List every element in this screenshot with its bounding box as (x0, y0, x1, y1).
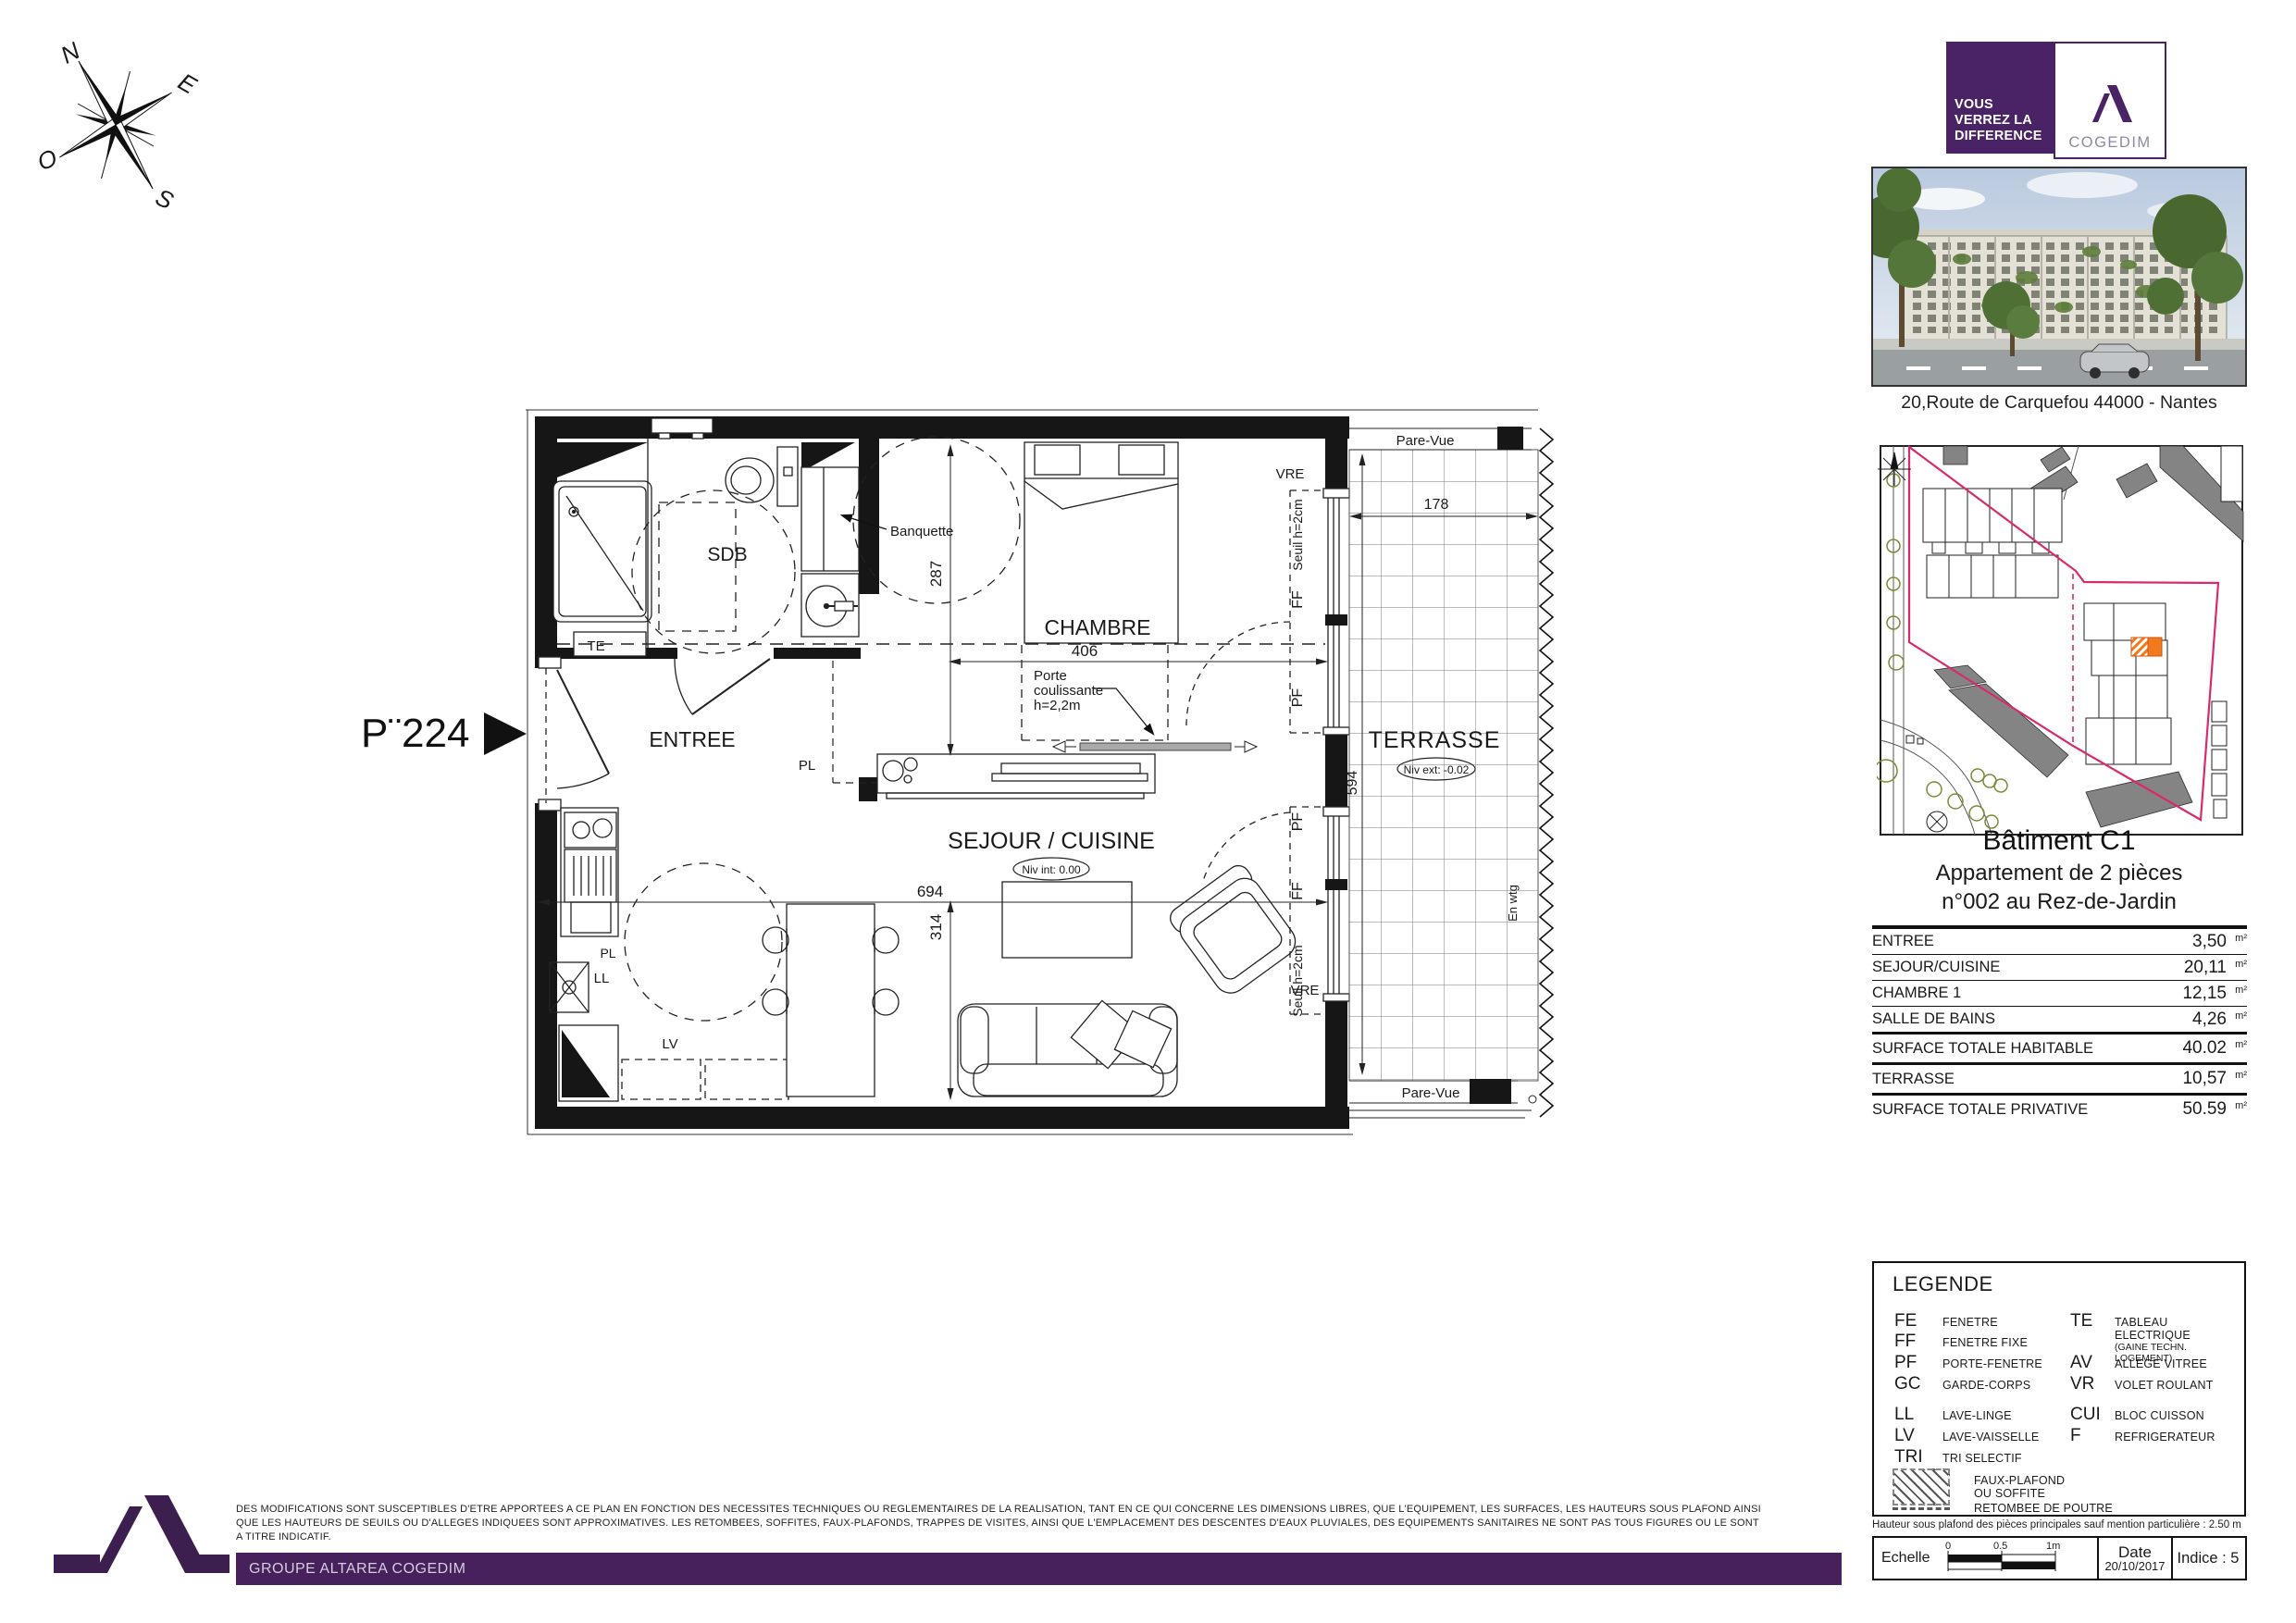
row-value: 12,15 (2182, 984, 2227, 1004)
room-label-chambre: CHAMBRE (1044, 615, 1150, 639)
legend-abbr: AV (2070, 1353, 2115, 1373)
kitchen-left (550, 808, 788, 1101)
compass-rose-icon: N E O S (28, 32, 241, 245)
sliding-door-note-1: Porte (1034, 668, 1067, 684)
wall-fill-wedge (557, 442, 648, 477)
window-chambre (1186, 489, 1349, 735)
legend-label: LAVE-LINGE (1942, 1409, 2012, 1422)
scale-bar: 0 0.5 1m (1942, 1540, 2065, 1577)
vre-top-label: VRE (1276, 466, 1305, 482)
compass-o: O (33, 143, 60, 176)
cogedim-logo: VOUS VERREZ LA DIFFERENCE COGEDIM (1946, 42, 2166, 159)
scale-tick: 1m (2046, 1541, 2060, 1552)
room-label-sejour: SEJOUR / CUISINE (948, 828, 1155, 854)
entrance-door (539, 657, 609, 811)
row-unit: m² (2227, 933, 2247, 944)
dim-chambre-height: 287 (927, 561, 945, 587)
row-unit: m² (2227, 985, 2247, 996)
chair-icon (873, 927, 899, 953)
legend: LEGENDE FEFENETRE FFFENETRE FIXE PFPORTE… (1872, 1261, 2246, 1517)
unit-titles: Bâtiment C1 Appartement de 2 pièces n°00… (1872, 825, 2246, 915)
lv-label: LV (662, 1036, 677, 1052)
legend-abbr: CUI (2070, 1405, 2115, 1425)
dishwasher-zone (622, 1059, 701, 1099)
plan-sheet: N E O S P¨224 (0, 0, 2296, 1623)
kitchen-counter (877, 754, 1155, 799)
brand-mark: COGEDIM (2054, 42, 2166, 159)
faux-plafond-swatch-icon (1893, 1468, 1950, 1505)
revision-index: Indice : 5 (2178, 1550, 2240, 1567)
legend-abbr: LL (1894, 1405, 1942, 1425)
pl-label: PL (799, 758, 815, 774)
unit-type: Appartement de 2 pièces (1872, 861, 2246, 886)
room-label-entree: ENTREE (649, 727, 735, 751)
brand-tagline: VOUS VERREZ LA DIFFERENCE (1946, 42, 2054, 154)
legend-abbr: FF (1894, 1332, 1942, 1352)
banquette-bench (801, 467, 859, 571)
level-interior: Niv int: 0.00 (1022, 863, 1081, 876)
entry-marker-label: P¨224 (361, 711, 469, 757)
chair-icon (763, 989, 788, 1015)
terrace-post (1470, 1079, 1511, 1104)
table-row: SALLE DE BAINS 4,26 m² (1872, 1007, 2247, 1035)
table-row: ENTREE 3,50 m² (1872, 929, 2247, 955)
row-label: SALLE DE BAINS (1872, 1010, 2192, 1028)
seuil-label: Seuil h=2cm (1290, 499, 1305, 570)
row-value: 50.59 (2182, 1099, 2227, 1120)
row-label: SURFACE TOTALE HABITABLE (1872, 1040, 2182, 1058)
groupe-label: GROUPE ALTAREA COGEDIM (236, 1561, 465, 1578)
table-row-total-habitable: SURFACE TOTALE HABITABLE 40.02 m² (1872, 1035, 2247, 1065)
entry-closet (833, 661, 877, 783)
terrace-edge-zigzag (1540, 428, 1553, 1117)
room-label-sdb: SDB (707, 544, 747, 565)
scale-label: Echelle (1881, 1550, 1930, 1567)
pare-vue-bottom-label: Pare-Vue (1402, 1085, 1460, 1101)
row-value: 20,11 (2184, 958, 2227, 978)
lambda-icon (2082, 82, 2138, 132)
terrace-misc-note: En wtg (1506, 885, 1520, 922)
legend-label: LAVE-VAISSELLE (1942, 1431, 2039, 1443)
compass-e: E (173, 68, 202, 100)
site-map (1877, 444, 2245, 837)
dim-sejour-height: 314 (927, 914, 945, 940)
legend-label: RETOMBEE DE POUTRE (1974, 1502, 2113, 1515)
dim-chambre-width: 406 (1072, 642, 1098, 660)
toilet-icon (726, 458, 774, 502)
title-block: Echelle 0 0.5 1m Date 20/10/2017 Indi (1872, 1536, 2247, 1580)
legend-abbr: F (2070, 1426, 2115, 1446)
row-value: 4,26 (2192, 1010, 2227, 1030)
row-value: 40.02 (2182, 1038, 2227, 1059)
pf-label: PF (1290, 812, 1306, 832)
legend-label: REFRIGERATEUR (2115, 1431, 2215, 1443)
legend-abbr: TRI (1894, 1447, 1942, 1468)
ll-label: LL (594, 971, 610, 986)
building-photo (1871, 167, 2247, 387)
floor-plan: Pare-Vue Pare-Vue 178 594 TERRASSE Niv e… (514, 398, 1601, 1171)
pf-label: PF (1290, 688, 1306, 708)
ff-label: FF (1290, 590, 1306, 609)
entry-marker: P¨224 (361, 711, 527, 757)
surface-table: ENTREE 3,50 m² SEJOUR/CUISINE 20,11 m² C… (1872, 925, 2247, 1123)
table-row: CHAMBRE 1 12,15 m² (1872, 981, 2247, 1007)
legend-abbr: VR (2070, 1374, 2115, 1394)
disclaimer-line: DES MODIFICATIONS SONT SUSCEPTIBLES D'ET… (236, 1503, 1846, 1517)
table-row: TERRASSE 10,57 m² (1872, 1065, 2247, 1096)
row-unit: m² (2227, 959, 2247, 970)
tagline-line2: VERREZ LA (1955, 113, 2054, 129)
chair-icon (873, 989, 899, 1015)
dim-terrasse-height: 594 (1345, 771, 1360, 796)
chair-icon (763, 927, 788, 953)
coffee-table-icon (1002, 882, 1132, 958)
disclaimer-line: A TITRE INDICATIF. (236, 1530, 1846, 1544)
row-value: 10,57 (2182, 1069, 2227, 1089)
legend-label: TRI SELECTIF (1942, 1452, 2022, 1465)
scale-tick: 0.5 (1993, 1541, 2007, 1552)
legend-label: ALLEGE VITREE (2115, 1357, 2207, 1370)
room-label-terrasse: TERRASSE (1369, 727, 1501, 753)
bed-icon (1024, 442, 1178, 643)
living-furniture (958, 861, 1302, 1096)
legend-label: FAUX-PLAFOND (1974, 1474, 2065, 1487)
building-title: Bâtiment C1 (1872, 825, 2246, 857)
terrace-post (1497, 427, 1523, 450)
washbasin-console (652, 418, 713, 433)
unit-number: n°002 au Rez-de-Jardin (1872, 889, 2246, 915)
sliding-door-note-2: coulissante (1034, 683, 1103, 699)
row-label: SEJOUR/CUISINE (1872, 959, 2184, 976)
ff-label: FF (1290, 882, 1306, 900)
seuil-label: Seuil h=2cm (1290, 945, 1305, 1016)
date-label: Date (2118, 1544, 2152, 1560)
legend-abbr: LV (1894, 1426, 1942, 1446)
row-label: ENTREE (1872, 933, 2192, 950)
legend-abbr: GC (1894, 1374, 1942, 1394)
brand-name: COGEDIM (2068, 134, 2151, 152)
legend-label: VOLET ROULANT (2115, 1379, 2214, 1392)
pare-vue-top-label: Pare-Vue (1396, 433, 1455, 449)
row-label: TERRASSE (1872, 1071, 2182, 1088)
legend-label: PORTE-FENETRE (1942, 1357, 2042, 1370)
legend-label: BLOC CUISSON (2115, 1409, 2204, 1422)
te-label: TE (587, 638, 604, 654)
bedroom (853, 437, 1178, 740)
retombee-swatch-icon (1893, 1507, 1950, 1510)
compass-s: S (152, 183, 179, 216)
legend-label: TABLEAU ELECTRIQUE (2115, 1316, 2244, 1342)
row-label: CHAMBRE 1 (1872, 985, 2182, 1002)
tagline-line1: VOUS (1955, 97, 2054, 113)
dim-terrasse-width: 178 (1424, 497, 1449, 513)
dining-set (763, 904, 899, 1096)
row-unit: m² (2227, 1010, 2247, 1022)
row-unit: m² (2227, 1039, 2247, 1050)
legend-title: LEGENDE (1893, 1272, 1993, 1296)
groupe-bar: GROUPE ALTAREA COGEDIM (236, 1553, 1842, 1585)
pl-label: PL (600, 946, 615, 960)
legend-label: OU SOFFITE (1974, 1487, 2065, 1500)
row-label: SURFACE TOTALE PRIVATIVE (1872, 1101, 2182, 1119)
banquette-label: Banquette (890, 524, 953, 539)
sliding-door-note-3: h=2,2m (1034, 698, 1080, 713)
legend-abbr: FE (1894, 1311, 1942, 1332)
ceiling-height-note: Hauteur sous plafond des pièces principa… (1872, 1519, 2247, 1530)
project-address: 20,Route de Carquefou 44000 - Nantes (1871, 392, 2247, 414)
table-row-total-privative: SURFACE TOTALE PRIVATIVE 50.59 m² (1872, 1096, 2247, 1123)
row-unit: m² (2227, 1100, 2247, 1111)
legend-label: FENETRE (1942, 1316, 1998, 1329)
table-icon (787, 904, 875, 1096)
disclaimer: DES MODIFICATIONS SONT SUSCEPTIBLES D'ET… (236, 1503, 1846, 1545)
row-value: 3,50 (2192, 932, 2227, 952)
legend-abbr: PF (1894, 1353, 1942, 1373)
disclaimer-line: QUE LES HAUTEURS DE SEUILS OU D'ALLEGES … (236, 1517, 1846, 1530)
date-value: 20/10/2017 (2104, 1560, 2165, 1573)
map-highlighted-unit (2131, 638, 2162, 656)
table-row: SEJOUR/CUISINE 20,11 m² (1872, 955, 2247, 981)
row-unit: m² (2227, 1070, 2247, 1081)
legend-label: GARDE-CORPS (1942, 1379, 2030, 1392)
dim-sejour-width: 694 (917, 883, 943, 900)
legend-label: FENETRE FIXE (1942, 1336, 2028, 1349)
scale-tick: 0 (1945, 1541, 1951, 1552)
altarea-logo-icon (54, 1492, 230, 1580)
legend-abbr: TE (2070, 1311, 2115, 1332)
armchair-icon (1166, 861, 1302, 999)
tagline-line3: DIFFERENCE (1955, 129, 2054, 144)
level-exterior: Niv ext: -0.02 (1404, 763, 1470, 776)
